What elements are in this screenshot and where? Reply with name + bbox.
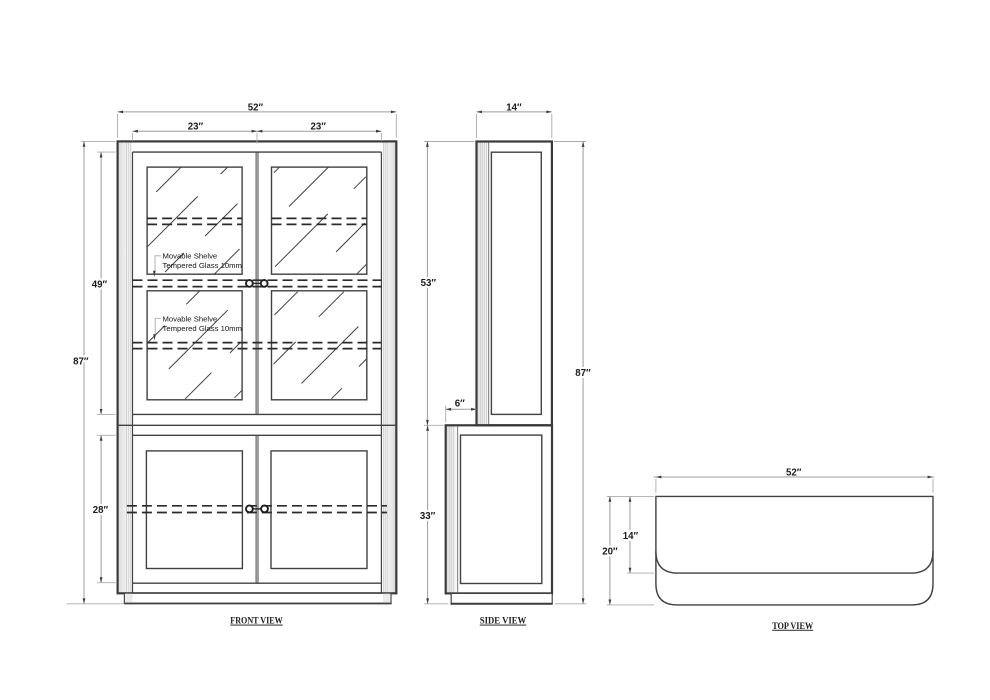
svg-text:87″: 87″: [575, 368, 591, 379]
svg-text:TOP VIEW: TOP VIEW: [772, 622, 814, 632]
svg-text:23″: 23″: [188, 122, 204, 133]
svg-text:Tempered Glass 10mm: Tempered Glass 10mm: [163, 261, 242, 270]
svg-text:52″: 52″: [248, 102, 264, 113]
svg-text:49″: 49″: [92, 280, 108, 291]
svg-text:53″: 53″: [421, 278, 437, 289]
svg-text:Movable Shelve: Movable Shelve: [163, 252, 218, 261]
svg-text:14″: 14″: [623, 531, 639, 542]
svg-text:SIDE VIEW: SIDE VIEW: [480, 617, 527, 627]
svg-text:Movable Shelve: Movable Shelve: [163, 315, 218, 324]
svg-text:52″: 52″: [786, 467, 802, 478]
svg-text:28″: 28″: [93, 505, 109, 516]
svg-text:14″: 14″: [506, 102, 522, 113]
svg-text:20″: 20″: [602, 546, 618, 557]
svg-text:23″: 23″: [310, 122, 326, 133]
svg-text:FRONT VIEW: FRONT VIEW: [230, 617, 283, 627]
svg-text:33″: 33″: [420, 511, 436, 522]
svg-text:6″: 6″: [455, 398, 465, 409]
svg-text:Tempered Glass 10mm: Tempered Glass 10mm: [163, 324, 242, 333]
svg-text:87″: 87″: [73, 357, 89, 368]
